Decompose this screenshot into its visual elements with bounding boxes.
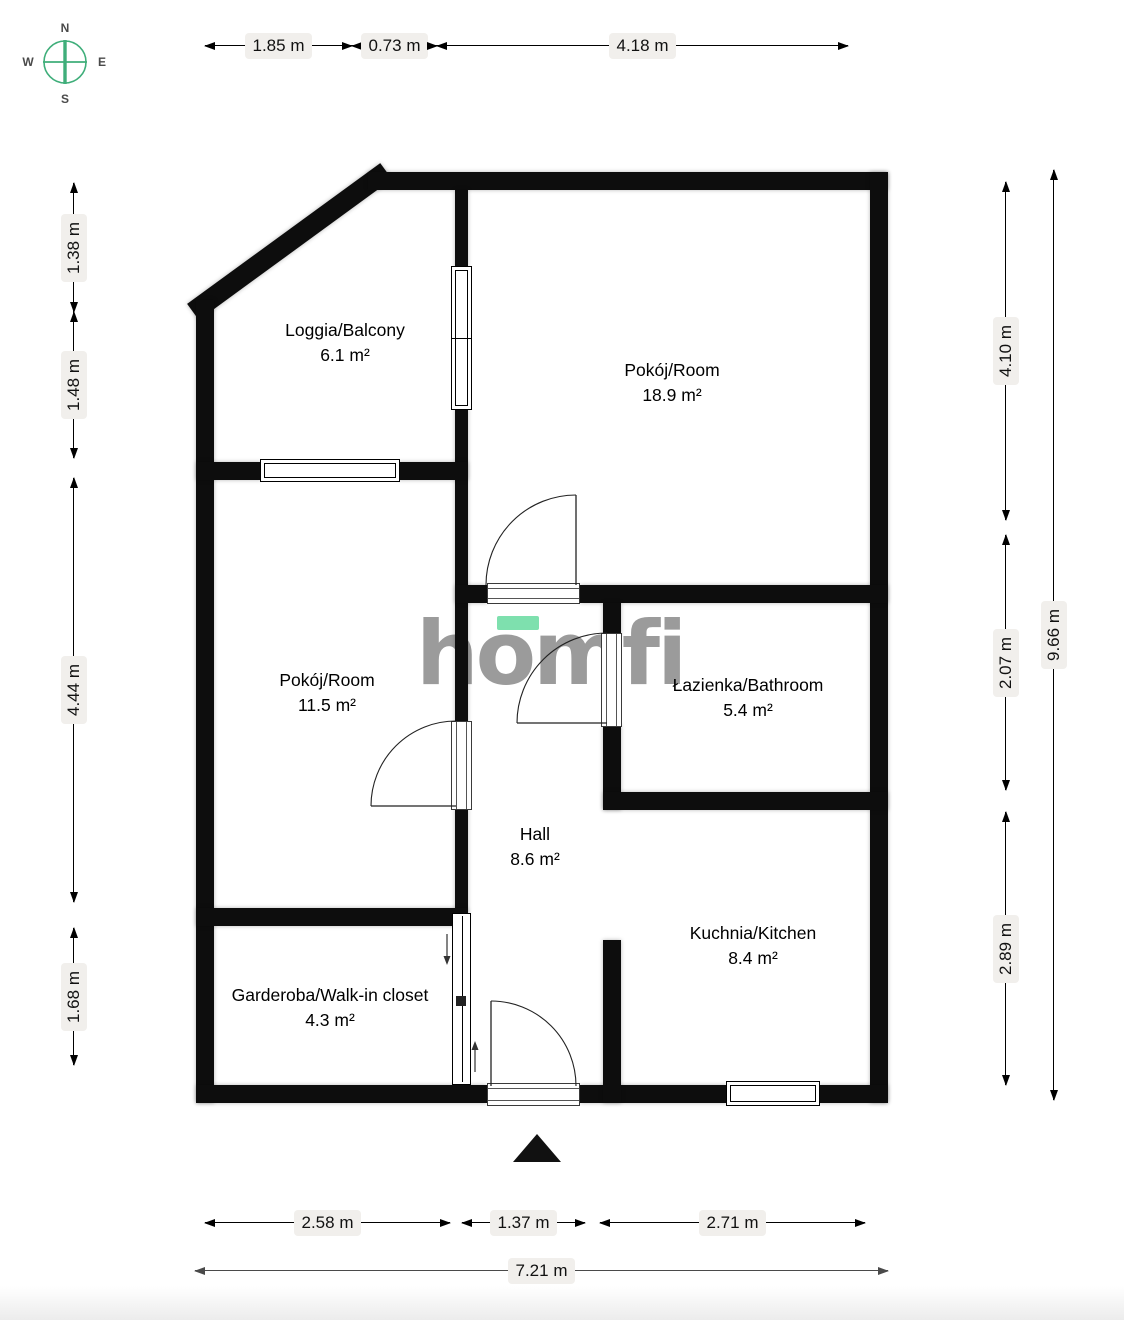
room-name: Pokój/Room — [207, 668, 447, 693]
floor-plan: N E S W homfi — [0, 0, 1124, 1320]
room-name: Loggia/Balcony — [225, 318, 465, 343]
room-label-room-18-9: Pokój/Room 18.9 m² — [552, 358, 792, 408]
room-label-hall: Hall 8.6 m² — [435, 822, 635, 872]
room-name: Garderoba/Walk-in closet — [180, 983, 480, 1008]
room-label-bathroom: Łazienka/Bathroom 5.4 m² — [618, 673, 878, 723]
room-area: 4.3 m² — [180, 1008, 480, 1033]
room-label-room-11-5: Pokój/Room 11.5 m² — [207, 668, 447, 718]
room-area: 5.4 m² — [618, 698, 878, 723]
room-area: 11.5 m² — [207, 693, 447, 718]
door-arc-entrance — [491, 1001, 576, 1086]
room-label-kitchen: Kuchnia/Kitchen 8.4 m² — [633, 921, 873, 971]
room-name: Hall — [435, 822, 635, 847]
door-arc-bathroom — [517, 633, 607, 723]
room-label-closet: Garderoba/Walk-in closet 4.3 m² — [180, 983, 480, 1033]
compass-south-label: S — [61, 92, 69, 106]
compass-west-label: W — [22, 55, 34, 69]
door-swing-overlay — [0, 0, 1124, 1320]
door-arc-room2 — [371, 721, 456, 806]
room-label-loggia: Loggia/Balcony 6.1 m² — [225, 318, 465, 368]
room-name: Pokój/Room — [552, 358, 792, 383]
compass-icon: N E S W — [18, 8, 112, 112]
room-area: 6.1 m² — [225, 343, 465, 368]
room-name: Kuchnia/Kitchen — [633, 921, 873, 946]
room-area: 18.9 m² — [552, 383, 792, 408]
compass-north-label: N — [61, 21, 70, 35]
entrance-arrow-icon — [513, 1134, 561, 1162]
room-name: Łazienka/Bathroom — [618, 673, 878, 698]
compass-east-label: E — [98, 55, 106, 69]
room-area: 8.6 m² — [435, 847, 635, 872]
sliding-arrow-down-head — [444, 956, 451, 965]
sliding-arrow-up-head — [472, 1041, 479, 1050]
room-area: 8.4 m² — [633, 946, 873, 971]
door-arc-room — [486, 495, 576, 585]
